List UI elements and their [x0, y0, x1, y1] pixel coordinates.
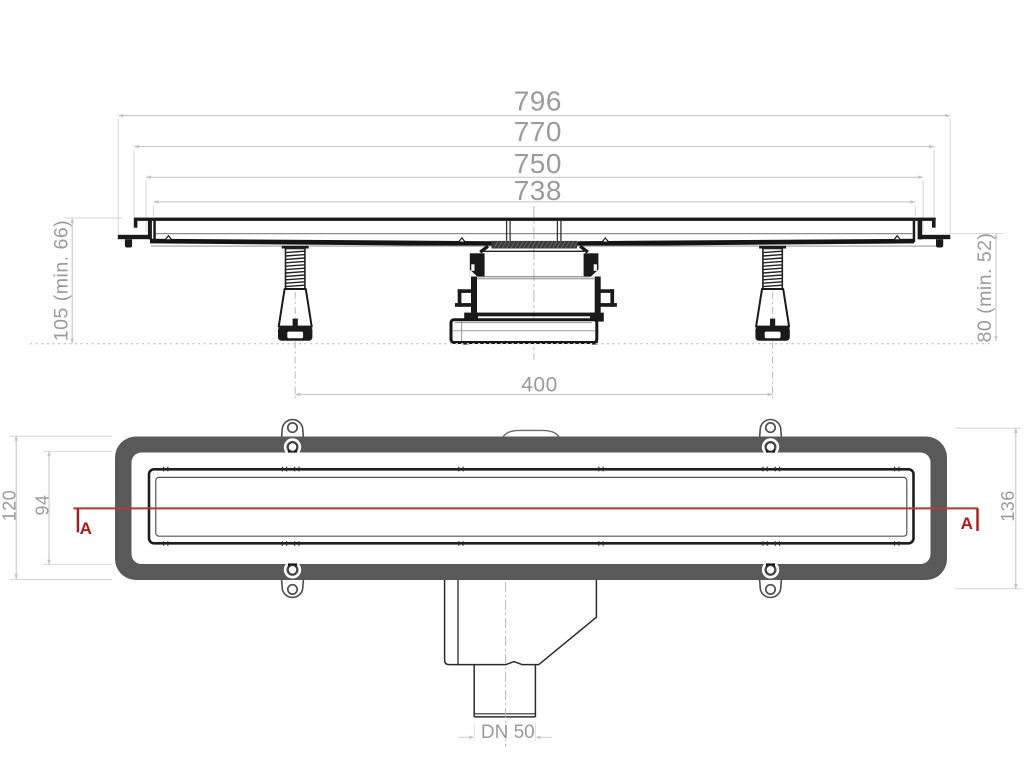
- svg-text:136: 136: [998, 490, 1018, 522]
- svg-text:400: 400: [521, 373, 558, 396]
- svg-text:94: 94: [32, 494, 52, 515]
- svg-text:770: 770: [514, 116, 562, 147]
- svg-text:A: A: [80, 519, 92, 538]
- svg-text:738: 738: [514, 175, 562, 206]
- svg-text:A: A: [961, 514, 973, 533]
- svg-text:105 (min. 66): 105 (min. 66): [51, 220, 73, 341]
- svg-text:80 (min. 52): 80 (min. 52): [974, 232, 996, 342]
- svg-text:120: 120: [0, 490, 20, 522]
- svg-text:DN 50: DN 50: [481, 722, 535, 743]
- svg-text:796: 796: [514, 85, 562, 116]
